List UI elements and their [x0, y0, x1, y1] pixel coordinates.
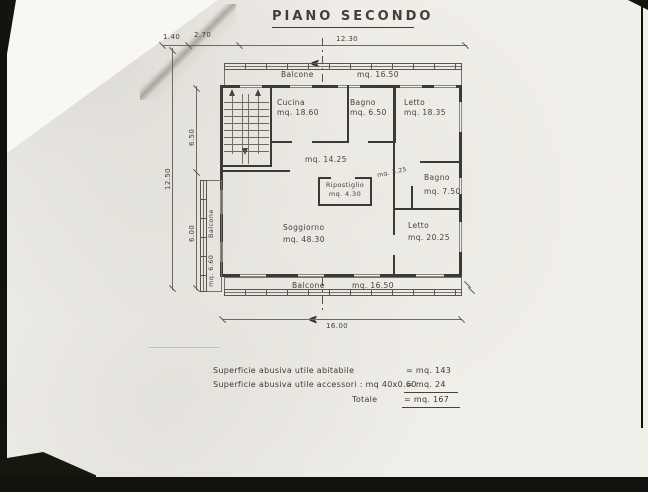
wall	[420, 161, 461, 163]
scan-edge-right	[641, 0, 643, 428]
window	[338, 85, 360, 88]
letto-bottom-label: Letto mq. 20.25	[408, 220, 450, 244]
door-opening	[290, 85, 312, 88]
wall	[318, 204, 372, 206]
wall	[270, 85, 272, 167]
scan-artifact-line	[148, 347, 220, 348]
corridoio-area: mq. 14.25	[305, 155, 347, 164]
summary-total-underline	[402, 407, 460, 408]
window	[400, 85, 422, 88]
stair-stringer	[248, 94, 249, 164]
wall	[220, 170, 290, 172]
letto-bottom-area: mq. 20.25	[408, 233, 450, 242]
ripostiglio-name: Ripostiglio	[326, 181, 364, 189]
letto-top-name: Letto	[404, 98, 425, 107]
soggiorno-label: Soggiorno mq. 48.30	[283, 222, 325, 246]
window	[459, 222, 462, 252]
wall	[272, 141, 292, 143]
window	[459, 102, 462, 132]
balcone-top-name: Balcone	[281, 70, 314, 79]
cucina-label: Cucina mq. 18.60	[277, 98, 319, 118]
bagno-mid-area: mq. 7.50	[424, 187, 461, 196]
scanned-floorplan-page: PIANO SECONDO 1.40 2.70 12.30 A A 12.50 …	[0, 0, 648, 492]
wall	[411, 186, 413, 210]
cucina-name: Cucina	[277, 98, 305, 107]
wall	[393, 255, 395, 276]
scan-edge-left	[0, 0, 7, 492]
ripostiglio-label: Ripostiglio mq. 4.30	[320, 181, 370, 199]
wall	[312, 141, 349, 143]
summary-row1-value: = mq. 143	[406, 366, 451, 375]
summary-row2-value: = mq. 24	[406, 380, 446, 389]
dim-label-top-3: 12.30	[336, 35, 358, 43]
dim-label-top-2: 2.70	[194, 31, 211, 39]
summary-total-label: Totale	[352, 395, 377, 404]
dim-label-top-1: 1.40	[163, 33, 180, 41]
letto-top-label: Letto mq. 18.35	[404, 98, 446, 118]
summary-row2-label: Superficie abusiva utile accessori : mq …	[213, 380, 417, 389]
soggiorno-area: mq. 48.30	[283, 235, 325, 244]
balcone-left-name: Balcone	[207, 209, 215, 238]
stair-up-arrow-icon	[255, 89, 261, 96]
dim-label-left-upper: 6.50	[188, 129, 196, 146]
stair-up-arrow-icon	[229, 89, 235, 96]
dim-label-bottom: 16.00	[326, 322, 348, 330]
bagno-mid-label: Bagno mq. 7.50	[424, 171, 461, 199]
scan-edge-bottom	[0, 477, 648, 492]
wall	[355, 177, 372, 179]
balcony-bottom-railing	[224, 289, 462, 296]
dim-line-left-outer	[172, 48, 173, 290]
window	[434, 85, 456, 88]
wall	[220, 165, 272, 167]
balcony-top-railing	[224, 63, 462, 70]
wall	[393, 143, 395, 163]
scan-corner-top-right	[628, 0, 648, 10]
window	[240, 85, 262, 88]
dim-label-left-total: 12.50	[164, 168, 172, 190]
wall	[347, 85, 349, 143]
dim-line-top	[162, 45, 467, 46]
bagno-mid-name: Bagno	[424, 173, 450, 182]
balcone-top-area: mq. 16.50	[357, 70, 399, 79]
summary-total-value: = mq. 167	[404, 395, 449, 404]
detail-mark	[468, 287, 475, 294]
wall	[393, 85, 396, 143]
summary-row2-underline	[404, 392, 458, 393]
stair-arrow-line	[258, 96, 259, 154]
soggiorno-name: Soggiorno	[283, 223, 324, 232]
dim-label-left-lower: 6.00	[188, 225, 196, 242]
balcone-bottom-area: mq. 16.50	[352, 281, 394, 290]
balcone-left-area: mq. 6.60	[207, 255, 215, 287]
dim-line-bottom	[222, 319, 462, 320]
bagno-top-name: Bagno	[350, 98, 376, 107]
wall	[395, 208, 461, 210]
stair-down-arrow-icon	[242, 148, 248, 155]
bagno-top-area: mq. 6.50	[350, 108, 387, 117]
wall	[368, 141, 395, 143]
stair-arrow-line	[232, 96, 233, 154]
staircase	[224, 96, 269, 152]
letto-bottom-name: Letto	[408, 221, 429, 230]
ripostiglio-area: mq. 4.30	[329, 190, 361, 198]
letto-top-area: mq. 18.35	[404, 108, 446, 117]
cucina-area: mq. 18.60	[277, 108, 319, 117]
dim-line-left-inner	[196, 86, 197, 290]
wall	[318, 177, 331, 179]
wall	[370, 177, 372, 206]
summary-row1-label: Superficie abusiva utile abitabile	[213, 366, 354, 375]
balcone-bottom-name: Balcone	[292, 281, 325, 290]
balcony-left-railing	[200, 180, 207, 292]
page-title: PIANO SECONDO	[272, 9, 414, 28]
bagno-top-label: Bagno mq. 6.50	[350, 98, 387, 118]
